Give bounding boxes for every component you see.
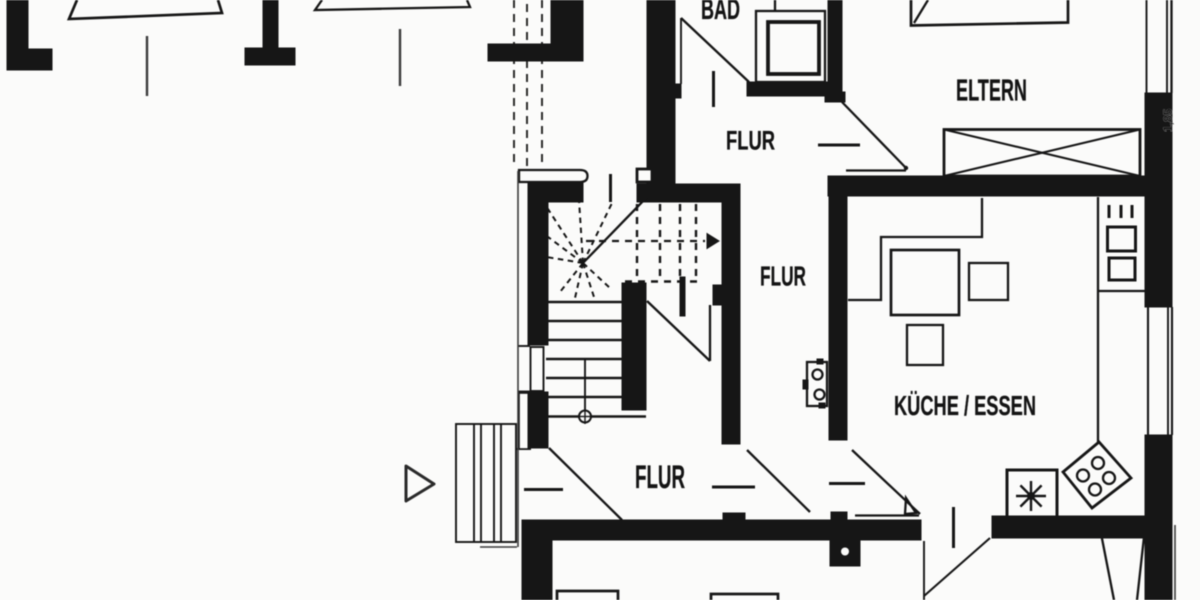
svg-text:BAD: BAD: [701, 0, 740, 26]
svg-text:FLUR: FLUR: [635, 459, 685, 495]
svg-text:KÜCHE / ESSEN: KÜCHE / ESSEN: [894, 390, 1036, 421]
svg-text:1,85: 1,85: [1161, 108, 1175, 132]
svg-text:ELTERN: ELTERN: [956, 73, 1027, 108]
svg-text:FLUR: FLUR: [760, 261, 806, 292]
svg-text:FLUR: FLUR: [726, 126, 775, 156]
